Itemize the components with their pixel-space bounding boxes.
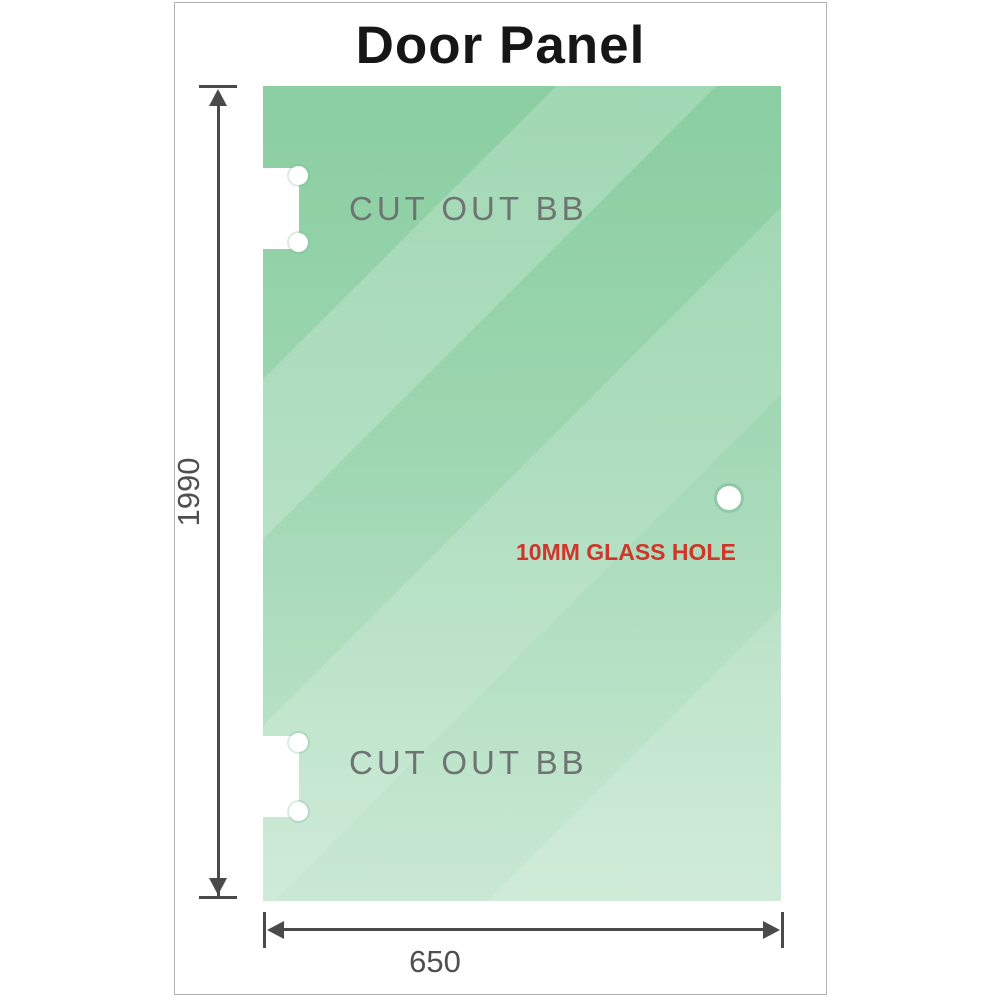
- door-panel-glass: CUT OUT BB CUT OUT BB 10MM GLASS HOLE: [263, 86, 781, 901]
- width-dimension-right-tick: [781, 912, 784, 948]
- cutout-bb-top-label: CUT OUT BB: [349, 190, 588, 228]
- height-dimension-arrow-up-icon: [209, 89, 227, 106]
- width-dimension-arrow-right-icon: [763, 921, 780, 939]
- width-dimension-left-tick: [263, 912, 266, 948]
- drawing-frame: Door Panel CUT OUT BB CUT OUT BB 10MM GL…: [174, 2, 827, 995]
- width-dimension-arrow-left-icon: [267, 921, 284, 939]
- width-dimension-value: 650: [409, 944, 461, 980]
- cutout-bb-top-bump-upper: [289, 166, 308, 185]
- page-title: Door Panel: [175, 15, 826, 76]
- height-dimension-line: [217, 95, 220, 897]
- width-dimension-line: [272, 928, 775, 931]
- cutout-bb-bottom-bump-upper: [289, 733, 308, 752]
- glass-hole-label: 10MM GLASS HOLE: [516, 539, 736, 566]
- cutout-bb-bottom-bump-lower: [289, 802, 308, 821]
- cutout-bb-bottom-label: CUT OUT BB: [349, 744, 588, 782]
- diagram-canvas: Door Panel CUT OUT BB CUT OUT BB 10MM GL…: [0, 0, 1000, 1000]
- height-dimension-arrow-down-icon: [209, 878, 227, 895]
- height-dimension-top-tick: [199, 85, 237, 88]
- glass-hole-icon: [717, 486, 741, 510]
- height-dimension-value: 1990: [171, 458, 207, 527]
- cutout-bb-top-bump-lower: [289, 233, 308, 252]
